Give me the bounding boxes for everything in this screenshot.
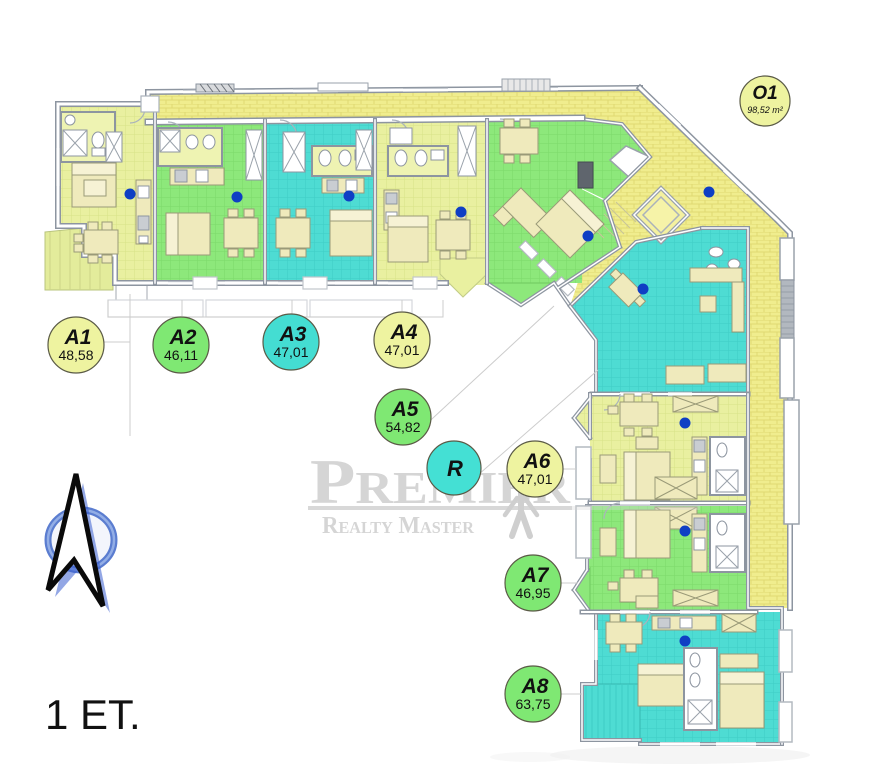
svg-text:A7: A7 <box>521 564 550 587</box>
svg-text:O1: O1 <box>752 83 777 104</box>
svg-text:R: R <box>447 456 463 481</box>
svg-text:A4: A4 <box>390 321 418 344</box>
svg-text:46,95: 46,95 <box>515 585 550 601</box>
svg-text:63,75: 63,75 <box>515 696 550 712</box>
svg-text:54,82: 54,82 <box>385 419 420 435</box>
svg-text:1 ET.: 1 ET. <box>45 691 141 738</box>
svg-text:A8: A8 <box>521 675 549 698</box>
svg-text:A3: A3 <box>279 323 307 346</box>
svg-text:A1: A1 <box>64 326 92 349</box>
svg-text:47,01: 47,01 <box>517 471 552 487</box>
svg-text:A2: A2 <box>169 326 197 349</box>
svg-text:48,58: 48,58 <box>58 347 93 363</box>
svg-text:A6: A6 <box>523 450 551 473</box>
svg-text:98,52 m²: 98,52 m² <box>747 105 784 115</box>
svg-text:47,01: 47,01 <box>384 342 419 358</box>
svg-text:46,11: 46,11 <box>164 347 198 363</box>
svg-text:Realty Master: Realty Master <box>322 513 475 539</box>
svg-text:A5: A5 <box>391 398 419 421</box>
svg-text:47,01: 47,01 <box>273 344 308 360</box>
